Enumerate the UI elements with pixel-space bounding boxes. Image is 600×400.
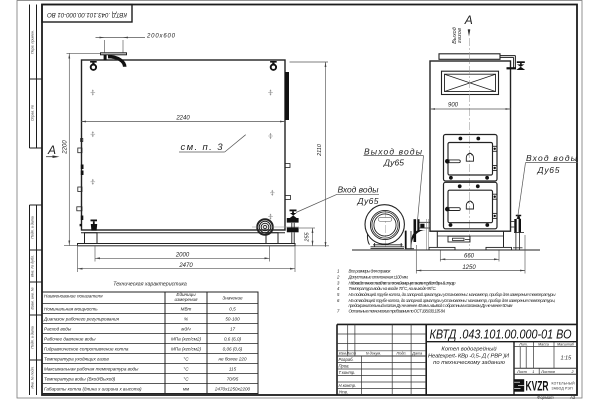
svg-text:Подп. и дата: Подп. и дата <box>31 216 35 239</box>
svg-text:%: % <box>184 317 188 322</box>
svg-text:70/95: 70/95 <box>227 377 239 382</box>
svg-text:Температура воды на входе 70°: Температура воды на входе 70°С, на выход… <box>349 286 437 291</box>
svg-text:МПа (кгс/см2): МПа (кгс/см2) <box>171 337 201 342</box>
svg-text:А: А <box>47 143 56 157</box>
svg-text:Рабочее давление воды: Рабочее давление воды <box>44 337 96 342</box>
svg-text:°С: °С <box>183 357 189 362</box>
svg-text:°С: °С <box>183 367 189 372</box>
svg-text:Диапазон рабочего регулировани: Диапазон рабочего регулирования <box>43 317 120 322</box>
svg-text:2000: 2000 <box>175 253 190 259</box>
svg-text:900: 900 <box>448 102 459 108</box>
svg-text:°С: °С <box>183 377 189 382</box>
svg-text:Габариты котла (длина х ширина: Габариты котла (длина х ширина х высота) <box>44 387 142 392</box>
svg-text:Изм: Изм <box>339 352 346 356</box>
svg-text:А3: А3 <box>569 395 576 400</box>
svg-text:Подп. и дата: Подп. и дата <box>31 326 35 349</box>
svg-text:КВТД .043.101.00.000-01 ВО: КВТД .043.101.00.000-01 ВО <box>47 11 127 18</box>
svg-text:по техническому заданию: по техническому заданию <box>433 360 505 366</box>
svg-text:Дата: Дата <box>411 352 422 356</box>
svg-text:17: 17 <box>230 327 236 332</box>
svg-text:2240: 2240 <box>175 115 190 121</box>
svg-text:Вход воды: Вход воды <box>338 185 380 195</box>
svg-text:Лист: Лист <box>516 370 527 374</box>
svg-text:Пров.: Пров. <box>339 364 350 369</box>
svg-text:115: 115 <box>229 367 237 372</box>
svg-text:Heatexpert- КВр -0,5- Д ( РВР: Heatexpert- КВр -0,5- Д ( РВР )И <box>428 353 510 359</box>
svg-text:1: 1 <box>532 370 534 374</box>
svg-text:Масштаб: Масштаб <box>557 342 575 346</box>
svg-text:0,6 (6,0): 0,6 (6,0) <box>224 337 242 342</box>
svg-text:Наименование показателя: Наименование показателя <box>44 294 103 299</box>
svg-text:Ду65: Ду65 <box>537 165 560 175</box>
svg-text:255: 255 <box>304 231 310 242</box>
svg-text:Ду65: Ду65 <box>383 157 404 167</box>
svg-text:Т.контр.: Т.контр. <box>339 370 356 375</box>
svg-text:200х600: 200х600 <box>146 33 176 39</box>
svg-text:Подп.: Подп. <box>396 352 406 356</box>
svg-text:см. п. 3: см. п. 3 <box>181 142 224 153</box>
svg-text:не более 220: не более 220 <box>218 357 246 362</box>
svg-text:КОТЕЛЬНЫЙ: КОТЕЛЬНЫЙ <box>552 382 576 386</box>
svg-text:Перв. примен.: Перв. примен. <box>31 30 35 54</box>
svg-text:Выход воды: Выход воды <box>364 146 423 156</box>
svg-text:Взам. инв. №: Взам. инв. № <box>31 287 35 309</box>
svg-text:Котел водогрейный: Котел водогрейный <box>441 346 497 353</box>
svg-text:Н.контр.: Н.контр. <box>339 383 357 388</box>
svg-text:Вход воды: Вход воды <box>526 153 578 163</box>
svg-text:0,06 (0,6): 0,06 (0,6) <box>223 347 243 352</box>
svg-text:N докум.: N докум. <box>366 352 381 356</box>
svg-text:МВт: МВт <box>181 307 192 312</box>
svg-text:На подводящей трубе котла, д: На подводящей трубе котла, до запорной а… <box>349 292 557 297</box>
svg-text:2470: 2470 <box>178 263 193 269</box>
svg-text:Разраб.: Разраб. <box>339 357 354 362</box>
svg-text:Инв. № подл.: Инв. № подл. <box>31 366 35 388</box>
svg-text:Справ. №: Справ. № <box>31 105 35 121</box>
svg-text:Гидравлическое сопротивление к: Гидравлическое сопротивление котла <box>44 347 129 352</box>
svg-text:1:15: 1:15 <box>560 356 572 362</box>
svg-text:газов: газов <box>457 28 463 43</box>
svg-text:Листов: Листов <box>540 370 555 374</box>
svg-text:KVZR: KVZR <box>526 377 549 393</box>
svg-text:мм: мм <box>183 387 190 392</box>
svg-text:Лист: Лист <box>345 352 356 356</box>
svg-text:Номинальная мощность: Номинальная мощность <box>44 307 98 312</box>
svg-text:Значение: Значение <box>222 296 243 301</box>
svg-text:2110: 2110 <box>317 143 323 157</box>
svg-text:Остальные технические требован: Остальные технические требования по ОСТ … <box>349 309 446 314</box>
svg-text:Ду65: Ду65 <box>357 196 379 206</box>
svg-text:2200: 2200 <box>62 140 68 155</box>
svg-text:Температура уходящих газов: Температура уходящих газов <box>44 357 109 362</box>
svg-text:2470х1250х2200: 2470х1250х2200 <box>214 387 251 392</box>
svg-text:На боковой стенке котла в обла: На боковой стенке котла в области топочн… <box>349 280 457 285</box>
svg-text:660: 660 <box>464 254 475 260</box>
svg-text:измерения: измерения <box>175 297 199 302</box>
svg-text:А: А <box>464 13 473 27</box>
svg-text:Максимальная рабочая температу: Максимальная рабочая температура воды <box>44 367 139 372</box>
svg-text:1250: 1250 <box>462 265 476 271</box>
svg-text:Расход воды: Расход воды <box>44 327 72 332</box>
svg-text:Утв.: Утв. <box>339 390 349 395</box>
svg-text:Масса: Масса <box>538 342 549 346</box>
svg-text:Допустимые отклонения ±100 мм: Допустимые отклонения ±100 мм. <box>348 274 409 279</box>
svg-text:0,5: 0,5 <box>229 307 236 312</box>
svg-text:50-100: 50-100 <box>225 317 240 322</box>
svg-text:Формат: Формат <box>537 395 554 400</box>
svg-text:ЗАВОД РЭП: ЗАВОД РЭП <box>552 387 574 391</box>
svg-text:предохранительный клапан Ду н: предохранительный клапан Ду не менее 40 … <box>349 303 513 308</box>
svg-text:Инв. № дубл.: Инв. № дубл. <box>31 255 35 277</box>
svg-text:Лит.: Лит. <box>518 342 527 346</box>
svg-text:м3/ч: м3/ч <box>181 327 191 332</box>
svg-text:Техническая характеристика: Техническая характеристика <box>113 282 187 288</box>
svg-text:Температура воды (Вход/Выход): Температура воды (Вход/Выход) <box>44 377 116 382</box>
svg-text:Все размеры для справок: Все размеры для справок <box>349 269 392 274</box>
svg-text:МПа (кгс/см2): МПа (кгс/см2) <box>171 347 201 352</box>
svg-text:КВТД .043.101.00.000-01 ВО: КВТД .043.101.00.000-01 ВО <box>430 326 572 341</box>
